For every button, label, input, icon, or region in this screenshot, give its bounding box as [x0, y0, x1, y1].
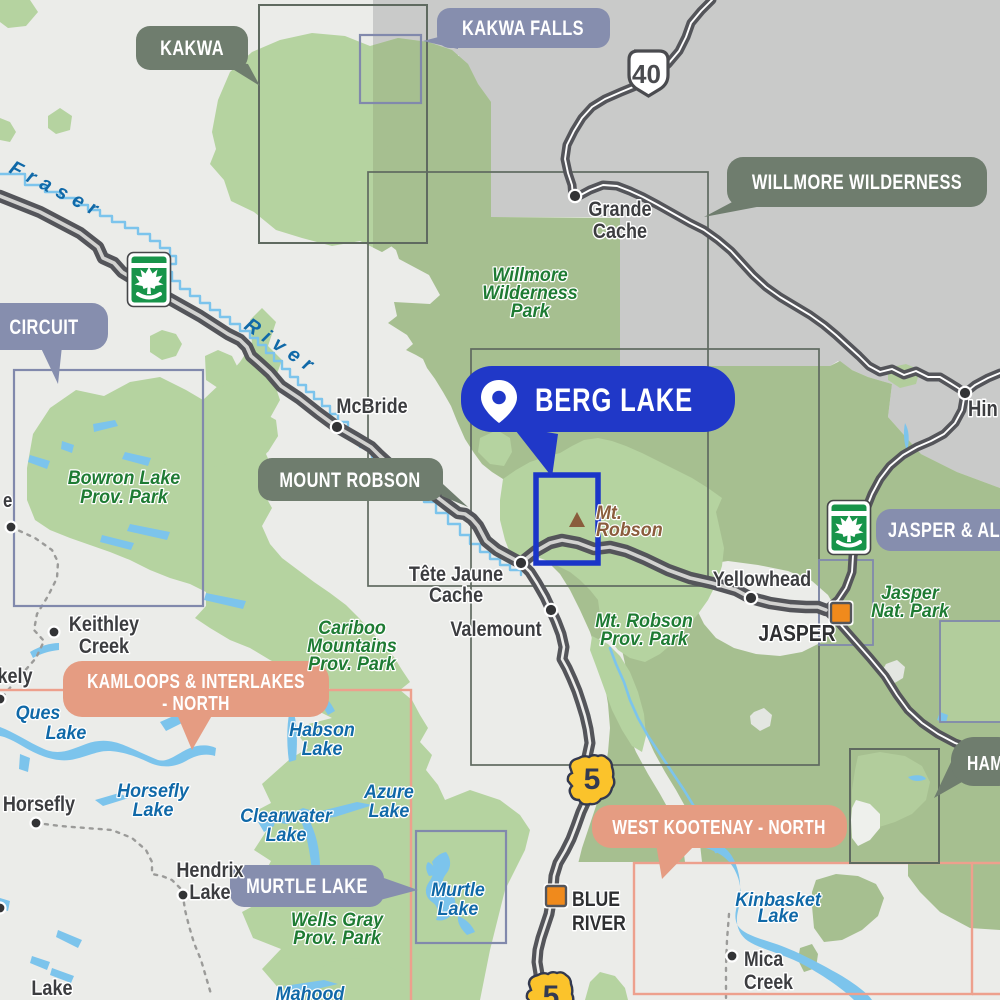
- svg-text:HAM: HAM: [967, 752, 1000, 774]
- svg-text:Prov. Park: Prov. Park: [600, 627, 689, 649]
- svg-text:KAKWA: KAKWA: [160, 36, 224, 59]
- svg-text:BLUE: BLUE: [572, 888, 620, 912]
- svg-text:Horsefly: Horsefly: [3, 793, 75, 817]
- svg-text:JASPER & ALBE: JASPER & ALBE: [888, 518, 1000, 541]
- svg-text:Lake: Lake: [133, 798, 174, 820]
- svg-text:Mica: Mica: [744, 948, 783, 972]
- svg-text:CIRCUIT: CIRCUIT: [9, 315, 78, 338]
- svg-text:RIVER: RIVER: [572, 912, 626, 936]
- svg-text:McBride: McBride: [336, 395, 407, 419]
- svg-text:kely: kely: [0, 665, 33, 689]
- svg-text:Lake: Lake: [302, 737, 343, 759]
- svg-text:5: 5: [584, 763, 601, 796]
- svg-text:Keithley: Keithley: [69, 613, 139, 637]
- svg-text:BERG LAKE: BERG LAKE: [535, 383, 693, 418]
- svg-text:Prov. Park: Prov. Park: [308, 652, 397, 674]
- svg-text:Creek: Creek: [79, 635, 130, 659]
- svg-text:- NORTH: - NORTH: [162, 692, 230, 714]
- svg-text:JASPER: JASPER: [758, 622, 835, 647]
- svg-text:Prov. Park: Prov. Park: [293, 926, 382, 948]
- svg-text:40: 40: [632, 59, 661, 89]
- svg-text:Valemount: Valemount: [450, 618, 542, 642]
- svg-text:Park: Park: [511, 299, 551, 321]
- svg-text:Lake: Lake: [31, 977, 72, 1000]
- svg-text:Cache: Cache: [593, 220, 647, 244]
- svg-text:KAMLOOPS & INTERLAKES: KAMLOOPS & INTERLAKES: [87, 670, 305, 692]
- svg-text:Lake: Lake: [438, 897, 479, 919]
- svg-text:Ques: Ques: [16, 701, 61, 723]
- svg-text:WEST KOOTENAY - NORTH: WEST KOOTENAY - NORTH: [612, 816, 825, 838]
- svg-text:Hin: Hin: [968, 398, 998, 422]
- svg-text:Robson: Robson: [596, 518, 663, 540]
- svg-text:Lake: Lake: [189, 881, 230, 905]
- svg-text:Lake: Lake: [46, 721, 87, 743]
- svg-text:5: 5: [543, 980, 560, 1000]
- svg-text:Hendrix: Hendrix: [176, 859, 243, 883]
- svg-text:Prov. Park: Prov. Park: [80, 485, 169, 507]
- svg-text:Lake: Lake: [266, 823, 307, 845]
- svg-text:MOUNT ROBSON: MOUNT ROBSON: [279, 468, 420, 491]
- svg-text:Cache: Cache: [429, 584, 483, 608]
- svg-text:Nat. Park: Nat. Park: [871, 599, 950, 621]
- svg-text:e: e: [3, 489, 12, 512]
- svg-text:Lake: Lake: [758, 904, 799, 926]
- svg-text:MURTLE LAKE: MURTLE LAKE: [246, 874, 368, 897]
- svg-text:Yellowhead: Yellowhead: [713, 568, 811, 592]
- svg-text:Creek: Creek: [744, 971, 793, 995]
- svg-text:KAKWA FALLS: KAKWA FALLS: [462, 16, 584, 39]
- svg-text:Mahood: Mahood: [276, 982, 345, 1000]
- svg-text:Lake: Lake: [369, 799, 410, 821]
- svg-text:WILLMORE WILDERNESS: WILLMORE WILDERNESS: [752, 170, 962, 193]
- svg-text:Grande: Grande: [588, 198, 651, 222]
